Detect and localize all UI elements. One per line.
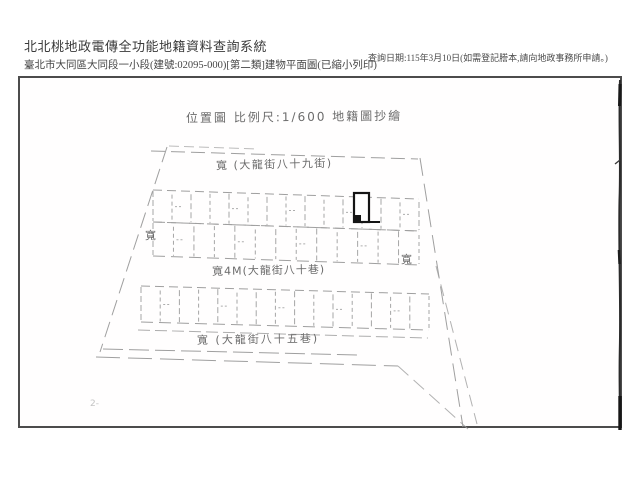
right-width-label: 寬 [401,251,412,267]
bottom-lane-label: 寬 (大龍街八十五巷) [197,330,319,348]
registry-printout-page: { "header": { "system_title": "北北桃地政電傳全功… [0,0,640,480]
left-width-label: 寬 [145,227,156,243]
top-street-label: 寬 (大龍街八十九街) [216,155,333,173]
scan-edge-artifact [615,80,620,430]
subject-building [354,193,380,222]
site-boundary-lines [96,146,477,429]
corner-pencil-note: 2- [90,399,99,409]
plan-title-annotation: 位置圖 比例尺:1/600 地籍圖抄繪 [186,107,402,126]
building-rows [141,190,429,330]
middle-lane-label: 寬4M(大龍街八十巷) [212,261,325,279]
